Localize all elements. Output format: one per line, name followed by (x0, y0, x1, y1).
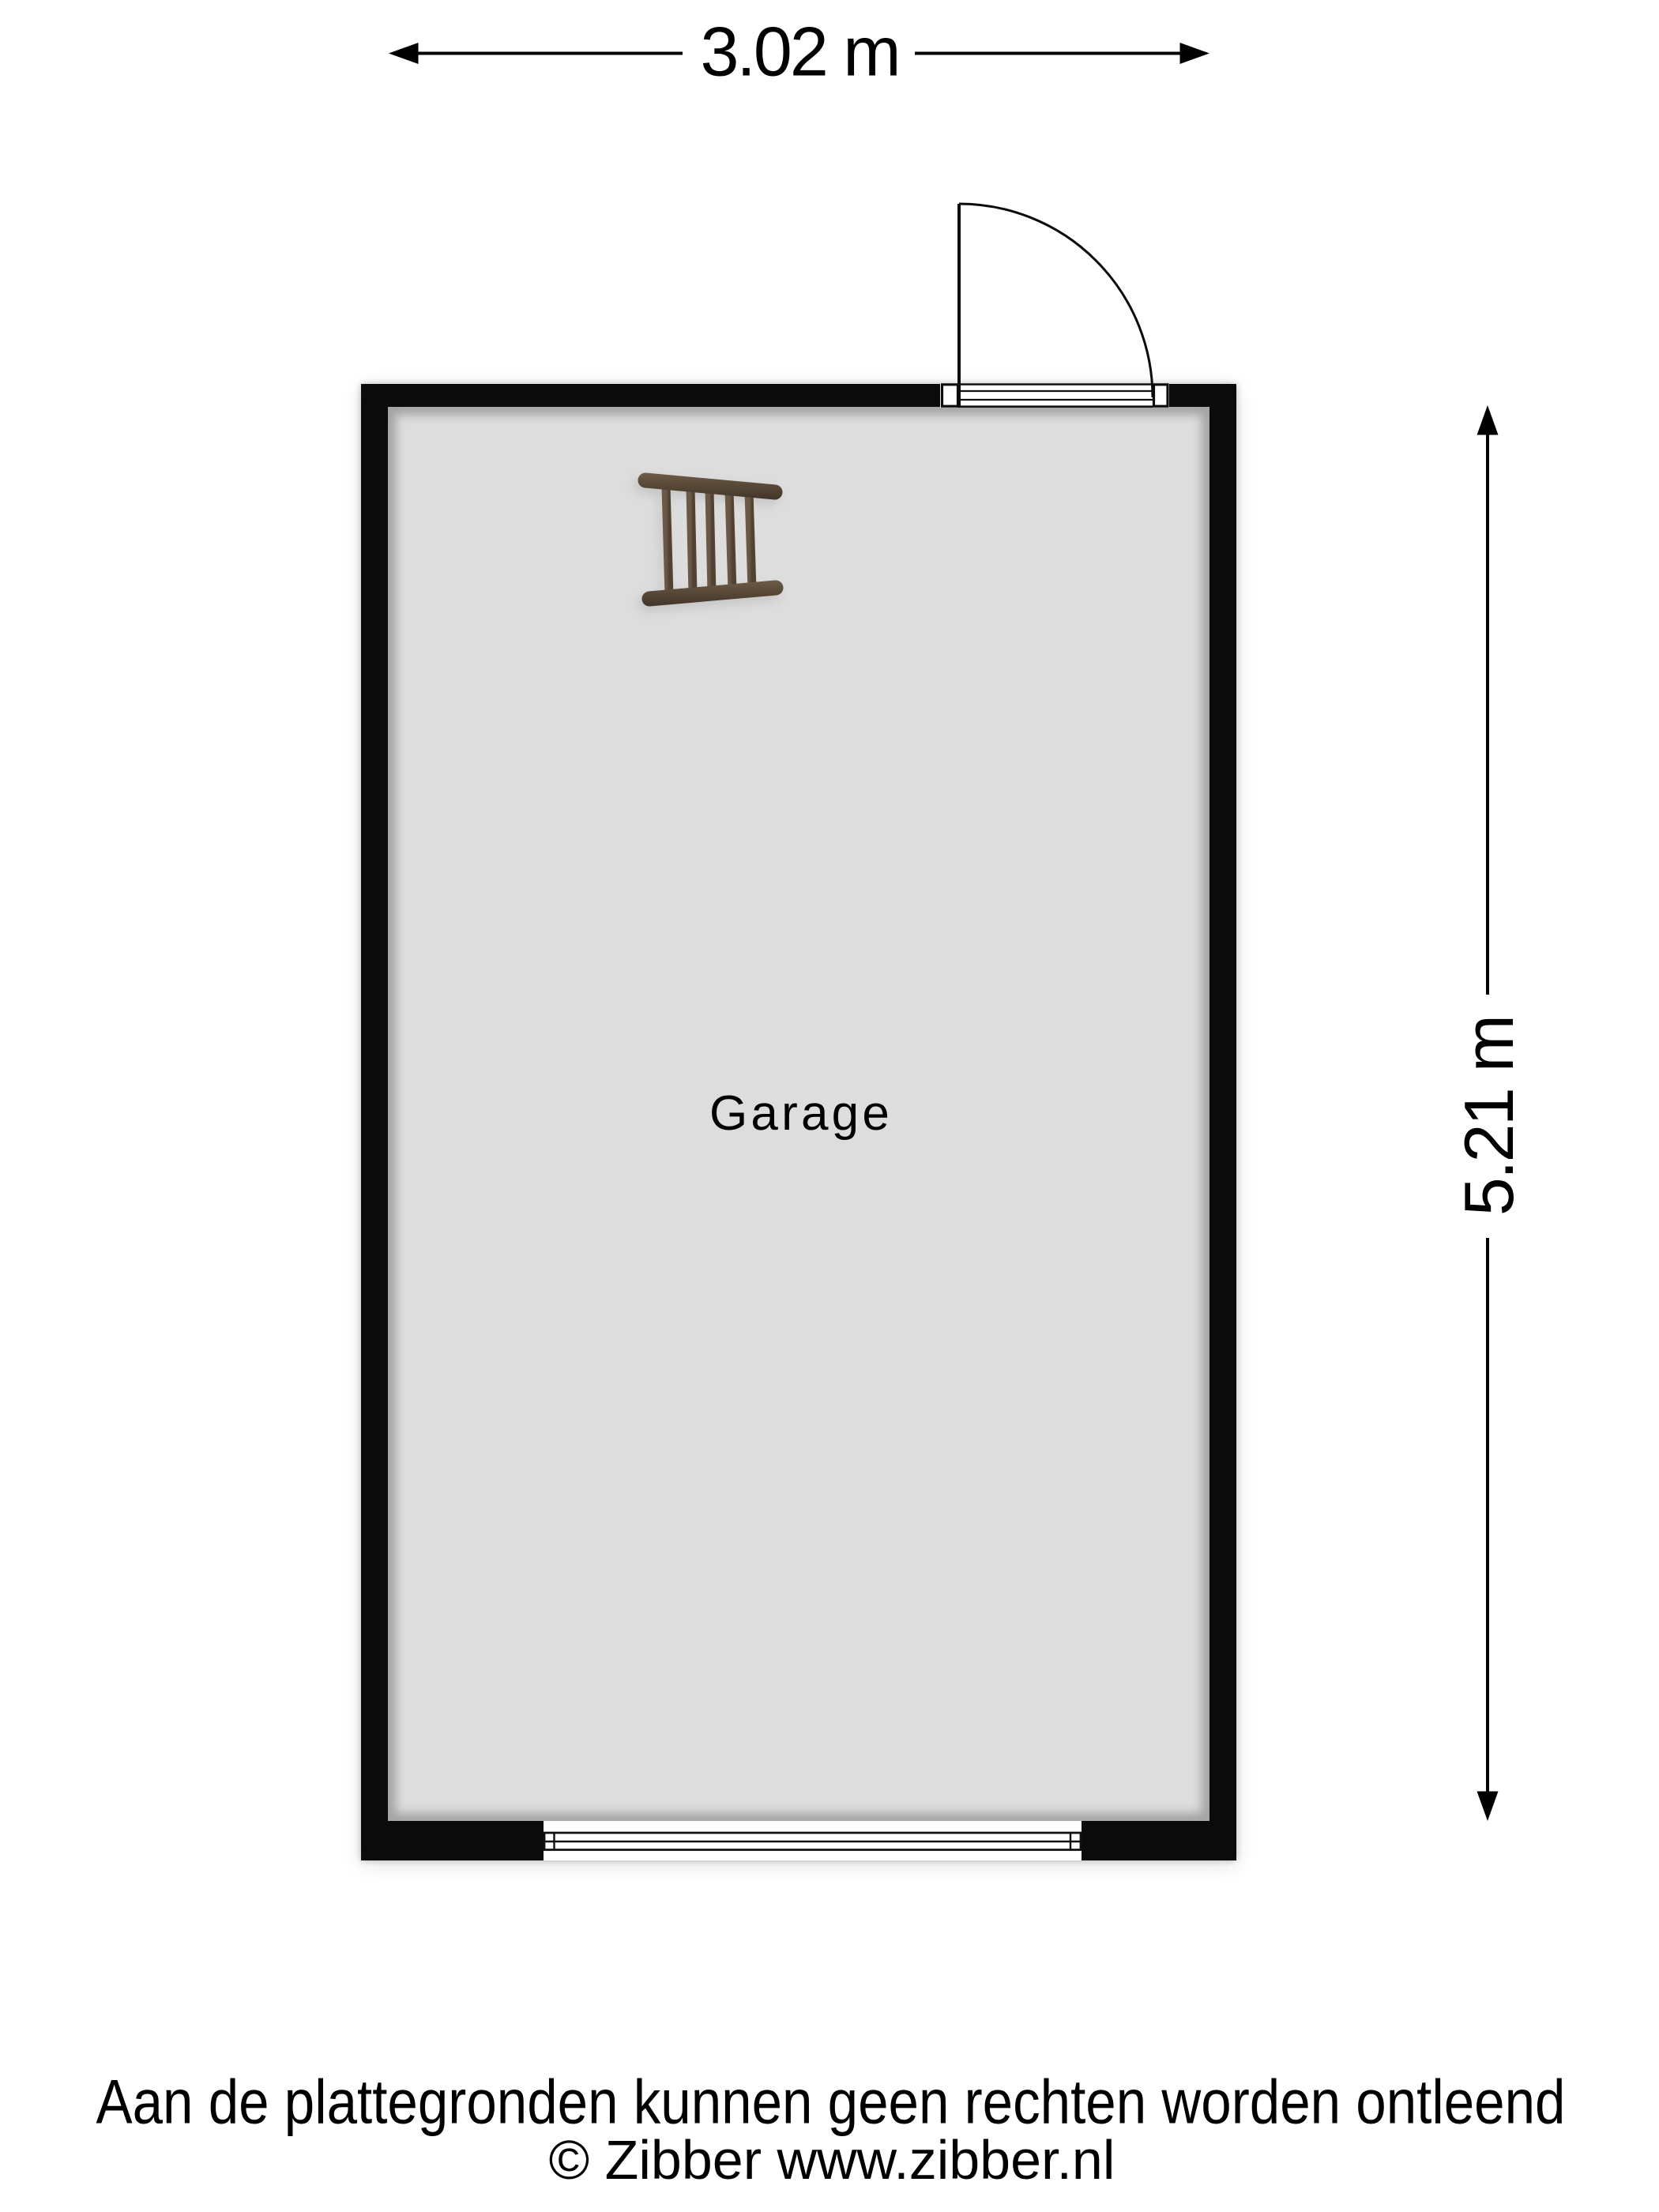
svg-text:3.02 m: 3.02 m (700, 13, 898, 91)
svg-text:5.21 m: 5.21 m (1450, 1017, 1528, 1216)
svg-text:Garage: Garage (709, 1086, 893, 1141)
svg-text:Aan de plattegronden kunnen ge: Aan de plattegronden kunnen geen rechten… (96, 2067, 1566, 2136)
svg-text:© Zibber www.zibber.nl: © Zibber www.zibber.nl (549, 2129, 1115, 2191)
